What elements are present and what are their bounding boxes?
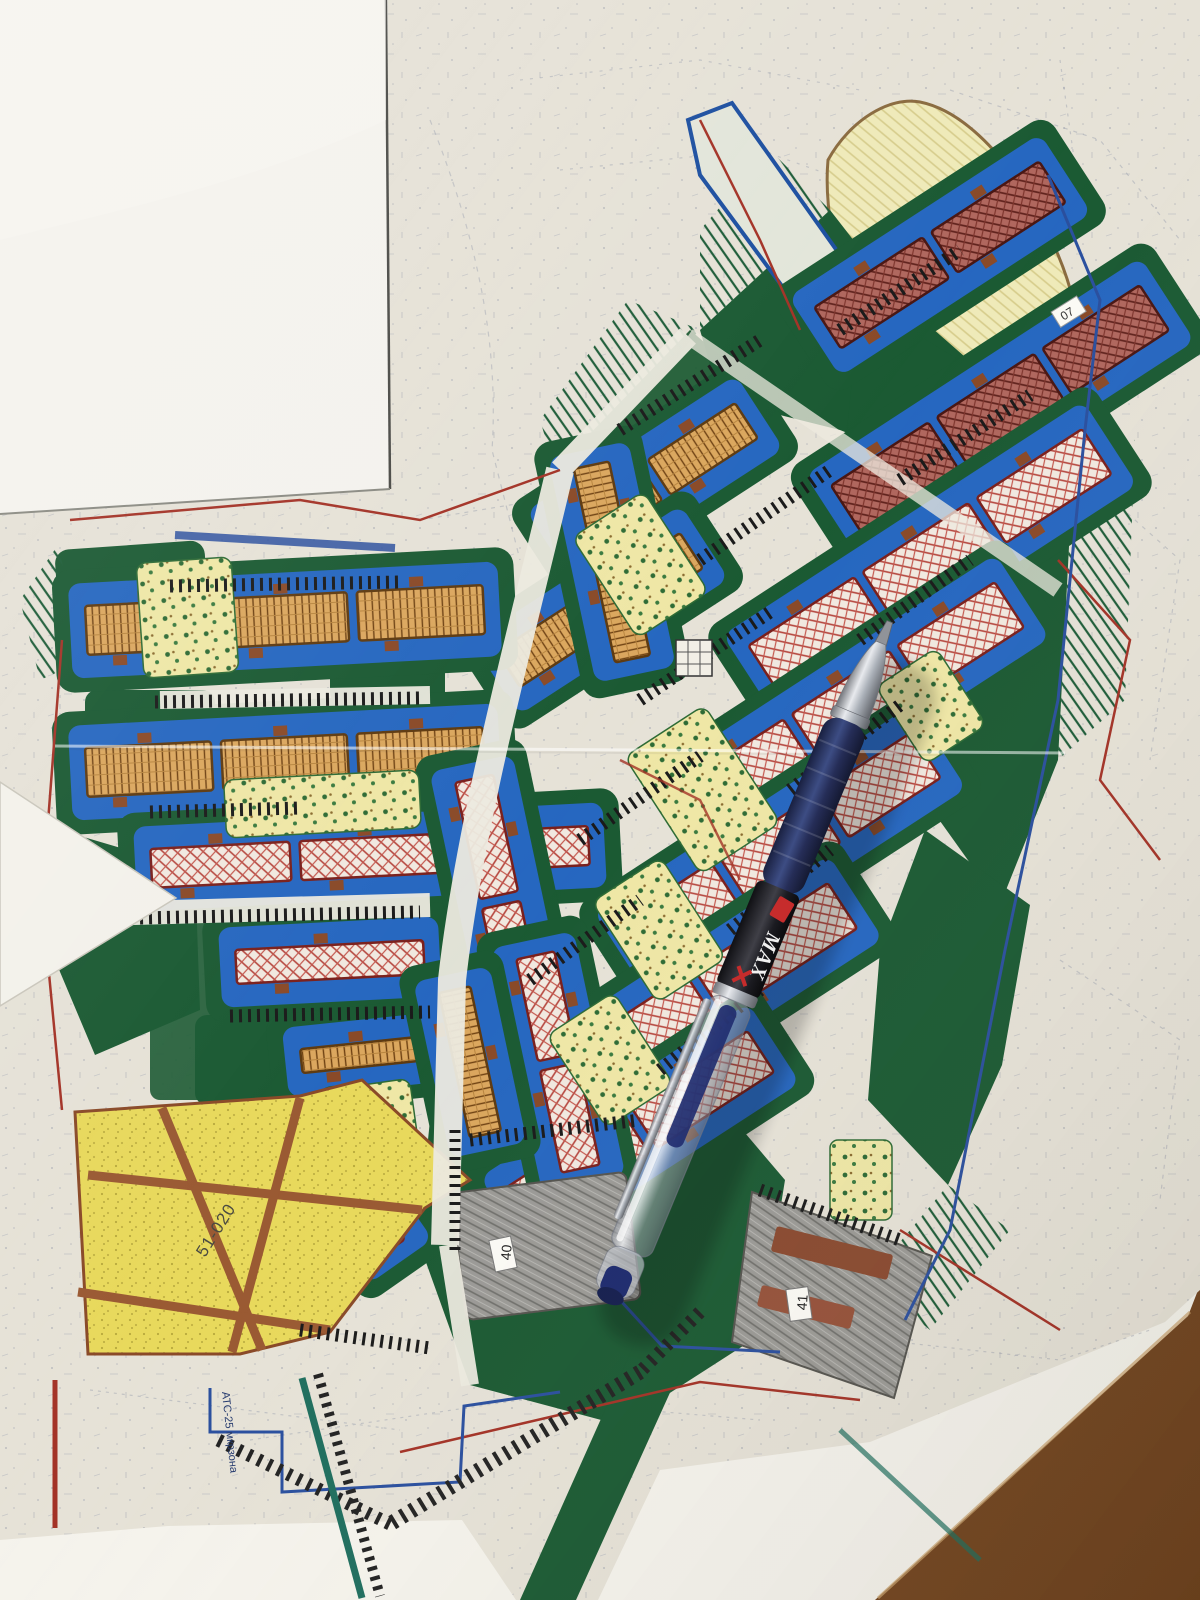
- vignette: [0, 0, 1200, 1600]
- photo-of-master-plan: 51-020 40 41: [0, 0, 1200, 1600]
